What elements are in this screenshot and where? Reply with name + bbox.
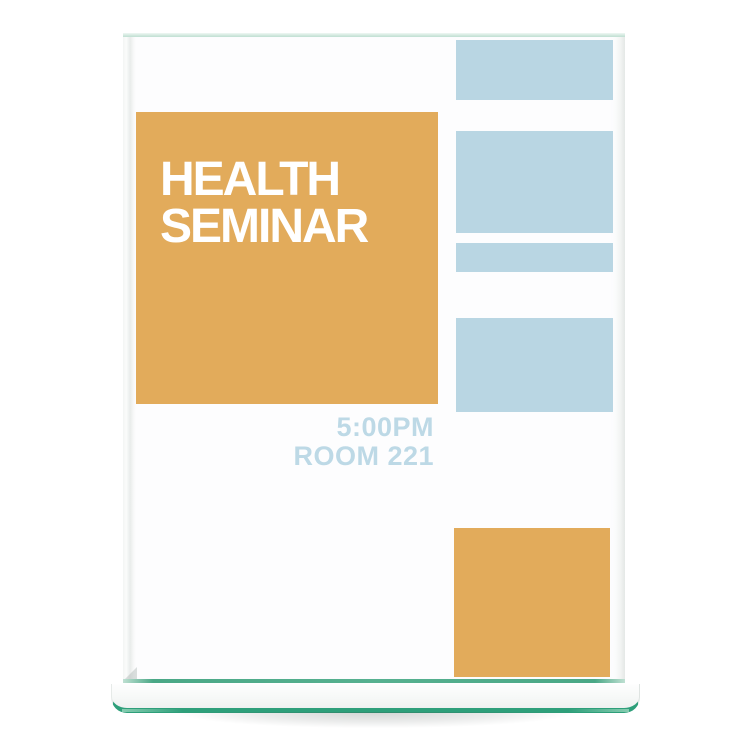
decor-blue-block-3 [456,243,613,272]
flyer-details: 5:00PM ROOM 221 [293,413,434,471]
glass-top-edge [123,33,625,37]
glass-left-edge [123,33,136,683]
glass-base [111,684,640,713]
base-shadow [118,712,632,736]
event-room: ROOM 221 [293,442,434,471]
flyer-title-line2: SEMINAR [160,203,438,250]
decor-orange-square [454,528,610,677]
decor-blue-block-2 [456,131,613,233]
decor-blue-block-1 [456,40,613,100]
glass-corner-bevel [125,667,137,679]
glass-panel: HEALTH SEMINAR 5:00PM ROOM 221 [123,33,625,683]
glass-right-edge [612,33,625,683]
decor-blue-block-4 [456,318,613,412]
product-photo: HEALTH SEMINAR 5:00PM ROOM 221 [0,0,750,750]
glass-panel-bottom-edge [123,679,625,683]
event-time: 5:00PM [293,413,434,442]
flyer-title-line1: HEALTH [160,156,438,203]
flyer-title-block: HEALTH SEMINAR [136,112,438,404]
